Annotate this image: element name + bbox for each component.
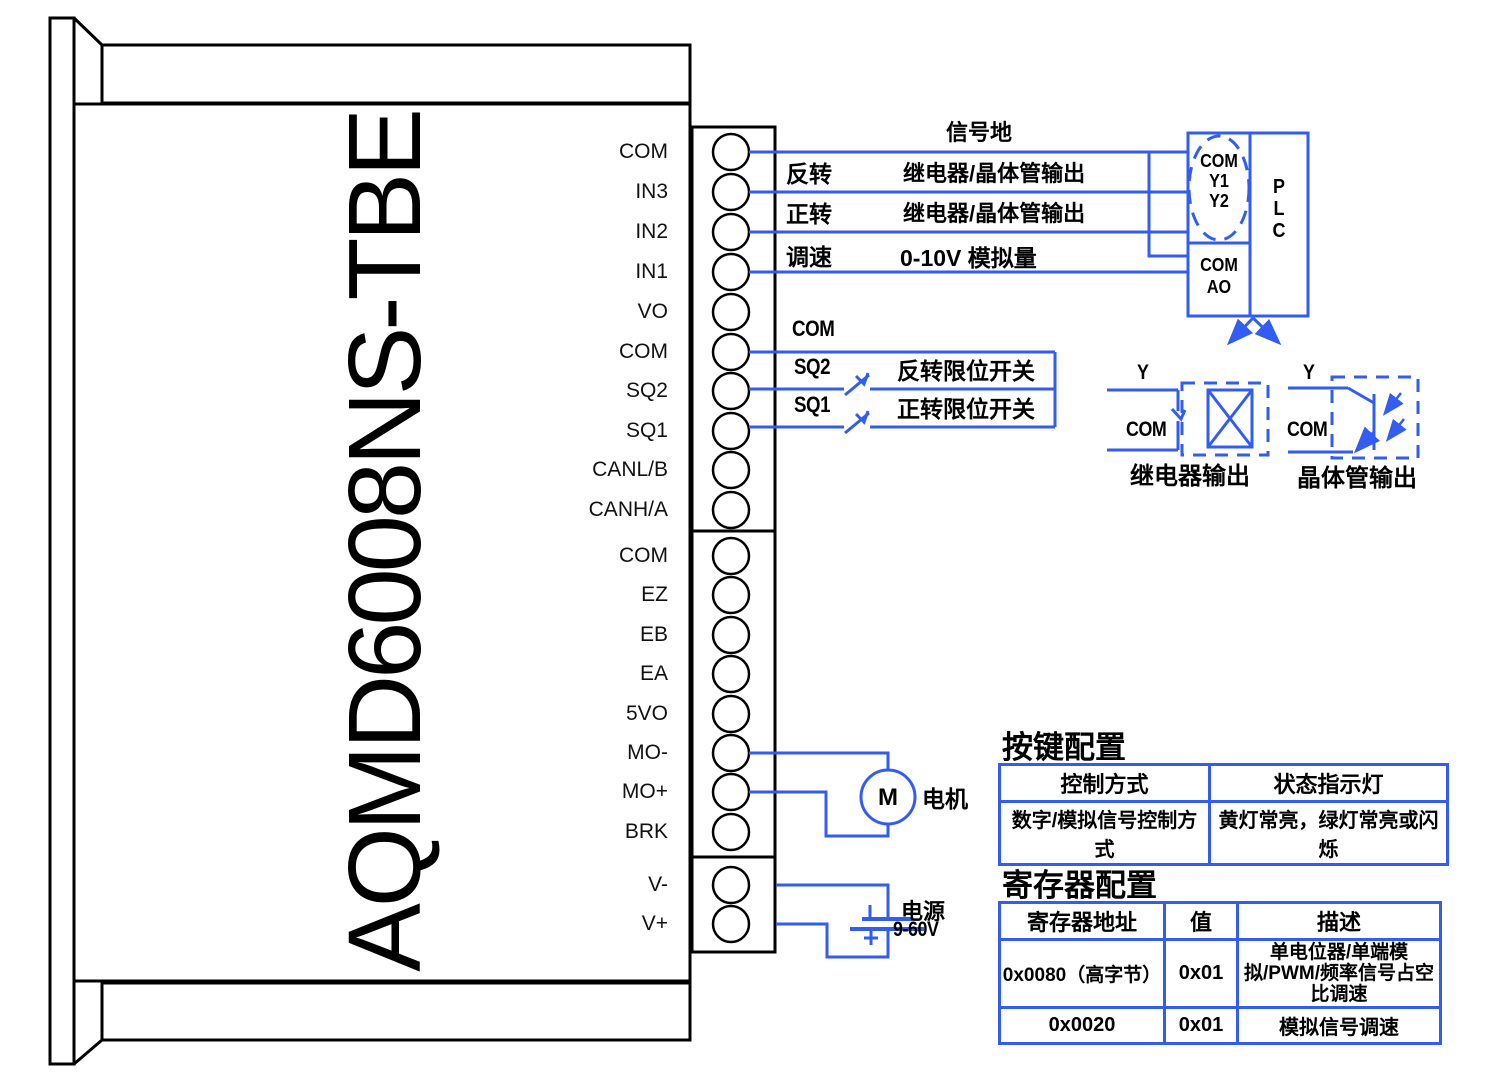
relay-caption: 继电器输出: [1130, 456, 1250, 491]
register-header-value: 值: [1165, 903, 1238, 940]
forward-target-label: 继电器/晶体管输出: [903, 196, 1085, 228]
register-header-address: 寄存器地址: [1000, 903, 1165, 940]
plc-y2: Y2: [1192, 191, 1246, 211]
reverse-target-label: 继电器/晶体管输出: [903, 156, 1085, 188]
speed-target-label: 0-10V 模拟量: [900, 239, 1037, 273]
terminal-label-in3: IN3: [635, 178, 668, 206]
register-row1-value: 0x01: [1165, 940, 1238, 1008]
terminal-label-eb: EB: [640, 621, 668, 649]
terminal-label-sq1: SQ1: [626, 417, 668, 445]
speed-label: 调速: [786, 238, 832, 272]
terminal-label-canha: CANH/A: [589, 496, 668, 524]
top-corner-bevel: [74, 18, 102, 45]
bottom-corner-bevel: [74, 1040, 102, 1064]
terminal-label-brk: BRK: [625, 818, 668, 846]
sq1-desc-label: 正转限位开关: [897, 390, 1035, 424]
relay-com-label: COM: [1126, 418, 1166, 442]
mount-bar: [50, 18, 74, 1064]
transistor-com-label: COM: [1287, 418, 1327, 442]
terminal-label-mo-plus: MO+: [622, 778, 668, 806]
register-config-title: 寄存器配置: [1002, 860, 1157, 905]
register-row1-desc: 单电位器/单端模拟/PWM/频率信号占空比调速: [1238, 940, 1441, 1008]
register-row2-desc: 模拟信号调速: [1238, 1008, 1441, 1044]
key-config-table: 控制方式 状态指示灯 数字/模拟信号控制方式 黄灯常亮，绿灯常亮或闪烁: [998, 763, 1449, 866]
terminal-label-in1: IN1: [635, 258, 668, 286]
reverse-label: 反转: [786, 155, 832, 189]
wire-mo-minus: [749, 753, 888, 770]
terminal-label-com-2: COM: [619, 338, 668, 366]
register-row2-address: 0x0020: [1000, 1008, 1165, 1044]
terminal-label-v-plus: V+: [642, 910, 668, 938]
terminal-label-sq2: SQ2: [626, 377, 668, 405]
wiring-diagram: AQMD6008NS-TBE COM IN3 IN2 IN1 VO COM SQ…: [0, 0, 1500, 1083]
plc-name-cell: P L C: [1263, 176, 1295, 242]
com-wire-label: COM: [792, 316, 834, 342]
relay-y-label: Y: [1137, 361, 1148, 385]
key-config-header-status: 状态指示灯: [1210, 765, 1448, 802]
transistor-caption: 晶体管输出: [1297, 458, 1417, 493]
wire-com-branch: [1149, 152, 1188, 256]
relay-dashed-box: [1182, 383, 1268, 455]
device-model-title: AQMD6008NS-TBE: [326, 112, 444, 972]
register-config-table: 寄存器地址 值 描述 0x0080（高字节） 0x01 单电位器/单端模拟/PW…: [998, 901, 1442, 1045]
terminal-label-mo-minus: MO-: [627, 739, 668, 767]
terminal-label-ea: EA: [640, 660, 668, 688]
plc-com-y: COM: [1192, 151, 1246, 171]
register-row1-address: 0x0080（高字节）: [1000, 940, 1165, 1008]
transistor-y-label: Y: [1303, 361, 1314, 385]
limit-switch-sq2-icon: [845, 373, 869, 395]
sq2-desc-label: 反转限位开关: [897, 352, 1035, 386]
transistor-icon: [1348, 388, 1374, 450]
terminal-holes: [713, 134, 749, 942]
terminal-label-com-3: COM: [619, 542, 668, 570]
plc-io-top-cell: COM Y1 Y2: [1189, 151, 1249, 211]
limit-switch-sq1-icon: [845, 411, 869, 433]
light-arrows-icon: [1386, 393, 1404, 438]
sq1-wire-label: SQ1: [794, 392, 830, 418]
plc-arrow-right: [1253, 318, 1277, 341]
plc-arrow-left: [1231, 318, 1253, 341]
motor-label: 电机: [922, 780, 968, 814]
bottom-flange: [102, 983, 690, 1040]
top-flange: [102, 45, 690, 103]
forward-label: 正转: [786, 195, 832, 229]
key-config-cell-control: 数字/模拟信号控制方式: [1000, 802, 1210, 865]
motor-symbol: M: [874, 784, 902, 812]
plc-y1: Y1: [1192, 171, 1246, 191]
power-voltage-label: 9-60V: [893, 918, 939, 942]
terminal-label-in2: IN2: [635, 218, 668, 246]
terminal-label-v-minus: V-: [648, 871, 668, 899]
terminal-label-vo: VO: [638, 298, 668, 326]
key-config-header-control: 控制方式: [1000, 765, 1210, 802]
terminal-label-canlb: CANL/B: [592, 456, 668, 484]
plc-com-ao: COM: [1192, 254, 1246, 276]
key-config-title: 按键配置: [1002, 722, 1126, 767]
signal-ground-label: 信号地: [946, 115, 1012, 147]
relay-coil-icon: [1208, 390, 1252, 447]
register-header-desc: 描述: [1238, 903, 1441, 940]
plc-io-bottom-cell: COM AO: [1189, 254, 1249, 298]
terminal-label-5vo: 5VO: [626, 700, 668, 728]
register-row2-value: 0x01: [1165, 1008, 1238, 1044]
sq2-wire-label: SQ2: [794, 354, 830, 380]
plus-mark: [864, 931, 878, 945]
plc-ao: AO: [1192, 276, 1246, 298]
terminal-label-ez: EZ: [641, 581, 668, 609]
key-config-cell-status: 黄灯常亮，绿灯常亮或闪烁: [1210, 802, 1448, 865]
terminal-label-com-1: COM: [619, 138, 668, 166]
